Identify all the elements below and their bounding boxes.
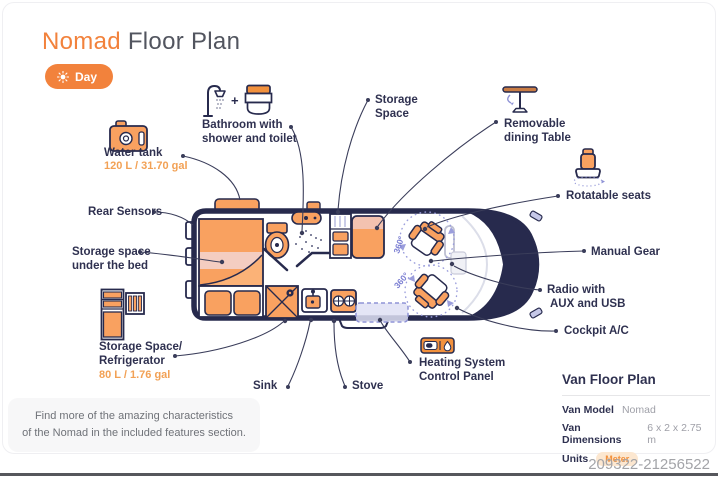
rotatable-seats-icon — [570, 148, 606, 193]
rear-sensors-label: Rear Sensors — [88, 205, 162, 219]
water-tank-label: Water tank 120 L / 31.70 gal — [104, 146, 188, 174]
footer-bar — [0, 473, 718, 476]
wardrobe — [330, 214, 351, 258]
bed — [199, 219, 263, 286]
dining-table — [352, 216, 384, 258]
kitchen-sink — [302, 289, 327, 312]
under-bed-storage — [199, 286, 263, 317]
sink-label: Sink — [253, 379, 277, 393]
bathroom-label: Bathroom with shower and toilet — [202, 118, 297, 147]
info-row-dimensions: Van Dimensions 6 x 2 x 2.75 m — [562, 422, 710, 446]
manual-gear-label: Manual Gear — [591, 245, 660, 259]
water-tank-capacity: 120 L / 31.70 gal — [104, 160, 188, 174]
cockpit-ac-label: Cockpit A/C — [564, 324, 629, 338]
note-box: Find more of the amazing characteristics… — [8, 398, 260, 452]
plus-sign: + — [231, 93, 239, 108]
toilet-icon — [244, 84, 274, 116]
info-row-model: Van Model Nomad — [562, 404, 710, 416]
refrigerator-capacity: 80 L / 1.76 gal — [99, 369, 182, 383]
refrigerator-label: Storage Space/ Refrigerator 80 L / 1.76 … — [99, 340, 182, 383]
shower-icon — [202, 82, 226, 118]
under-bed-label: Storage space under the bed — [72, 245, 151, 274]
refrigerator — [266, 286, 298, 318]
rotatable-seats-label: Rotatable seats — [566, 189, 651, 203]
storage-space-label: Storage Space — [375, 93, 418, 122]
stove-label: Stove — [352, 379, 383, 393]
refrigerator-icon — [100, 288, 146, 347]
bathroom-icons: + — [202, 82, 274, 118]
dining-table-icon — [500, 84, 540, 121]
radio-label: Radio with AUX and USB — [547, 283, 625, 312]
heating-label: Heating System Control Panel — [419, 356, 505, 385]
dining-table-label: Removable dining Table — [504, 117, 571, 146]
bathroom-sink — [292, 212, 321, 224]
info-panel-title: Van Floor Plan — [562, 372, 710, 396]
floorplan-page: Nomad Floor Plan Day — [0, 0, 718, 480]
stove — [331, 290, 356, 312]
listing-id: 209322-21256522 — [588, 456, 710, 473]
